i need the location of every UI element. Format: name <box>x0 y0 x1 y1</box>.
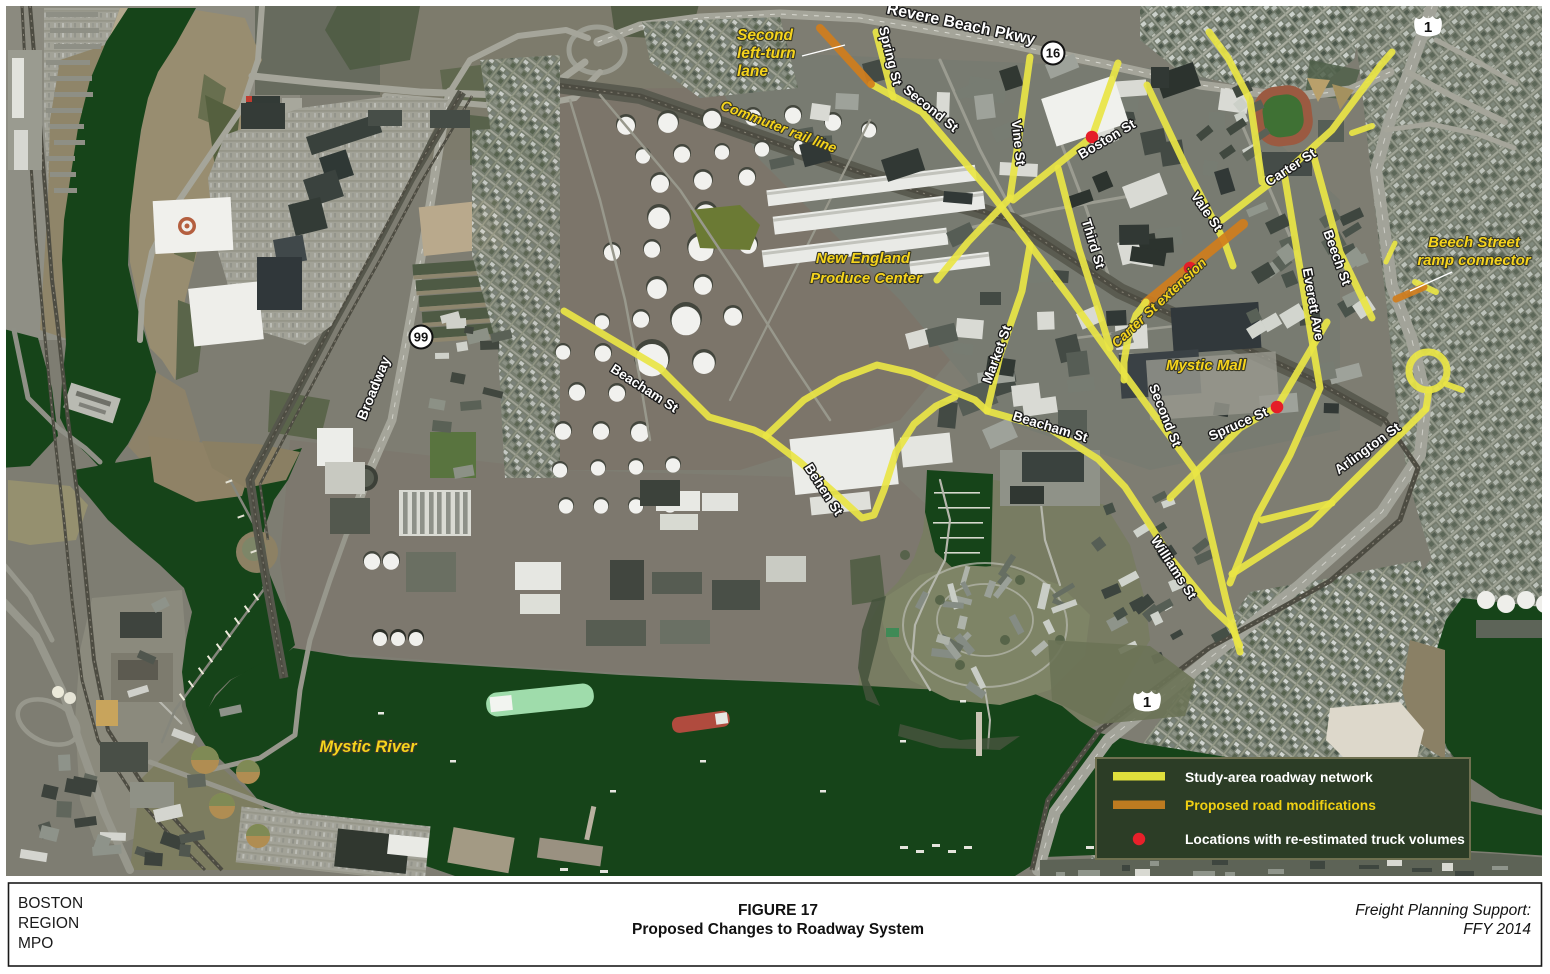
svg-text:Proposed Changes to Roadway Sy: Proposed Changes to Roadway System <box>632 921 924 938</box>
svg-text:lane: lane <box>737 63 768 80</box>
svg-text:Mystic River: Mystic River <box>319 738 418 756</box>
svg-text:Produce Center: Produce Center <box>810 270 923 287</box>
svg-text:Locations with re-estimated tr: Locations with re-estimated truck volume… <box>1185 832 1465 847</box>
svg-text:BOSTON: BOSTON <box>18 895 83 912</box>
svg-text:Second: Second <box>737 27 794 44</box>
svg-text:Freight Planning Support:: Freight Planning Support: <box>1355 902 1531 919</box>
svg-text:16: 16 <box>1046 46 1060 61</box>
svg-text:FFY 2014: FFY 2014 <box>1463 921 1531 938</box>
svg-text:1: 1 <box>1143 694 1151 711</box>
svg-text:New England: New England <box>816 250 911 267</box>
svg-text:REGION: REGION <box>18 915 79 932</box>
svg-text:Proposed road modifications: Proposed road modifications <box>1185 798 1376 813</box>
svg-text:ramp connector: ramp connector <box>1417 252 1532 269</box>
svg-text:Mystic Mall: Mystic Mall <box>1166 357 1247 374</box>
svg-text:1: 1 <box>1424 19 1432 36</box>
svg-text:FIGURE 17: FIGURE 17 <box>738 902 818 919</box>
svg-text:Beech Street: Beech Street <box>1428 234 1521 251</box>
svg-text:99: 99 <box>414 330 428 345</box>
svg-text:Study-area roadway network: Study-area roadway network <box>1185 770 1373 785</box>
svg-text:MPO: MPO <box>18 935 53 952</box>
svg-text:left-turn: left-turn <box>737 45 796 62</box>
